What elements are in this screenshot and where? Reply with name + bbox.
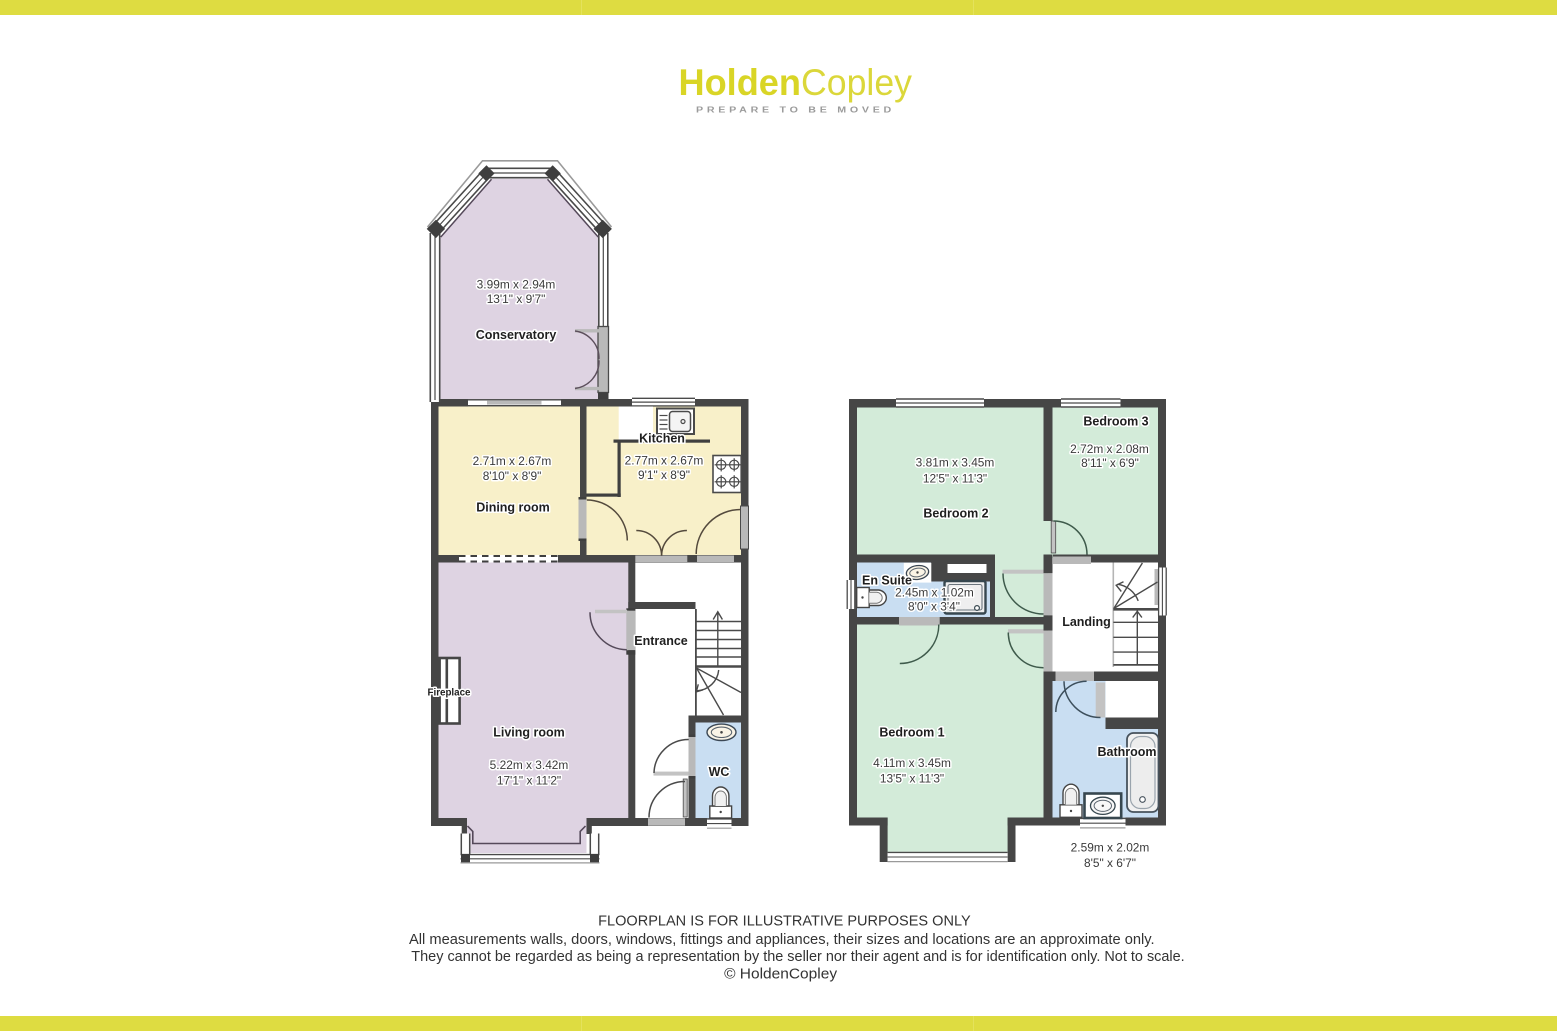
svg-text:8'5" x 6'7": 8'5" x 6'7" [1084,856,1136,870]
svg-text:FLOORPLAN IS FOR ILLUSTRATIVE: FLOORPLAN IS FOR ILLUSTRATIVE PURPOSES O… [598,914,971,930]
svg-text:13'5" x 11'3": 13'5" x 11'3" [880,772,944,786]
svg-text:8'0" x 3'4": 8'0" x 3'4" [908,600,960,614]
svg-text:2.45m x 1.02m: 2.45m x 1.02m [895,586,974,600]
svg-text:17'1" x 11'2": 17'1" x 11'2" [497,774,561,788]
svg-text:Kitchen: Kitchen [639,432,685,446]
svg-text:2.77m x 2.67m: 2.77m x 2.67m [625,454,704,468]
svg-text:Living room: Living room [493,726,565,740]
svg-text:Holden: Holden [679,61,802,103]
svg-text:Fireplace: Fireplace [427,688,471,699]
svg-text:Bathroom: Bathroom [1097,745,1156,759]
svg-text:En Suite: En Suite [862,574,912,588]
svg-text:Conservatory: Conservatory [476,328,557,342]
svg-text:All measurements walls, doors,: All measurements walls, doors, windows, … [409,932,1155,948]
svg-text:5.22m x 3.42m: 5.22m x 3.42m [490,758,569,772]
svg-text:They cannot be regarded as bei: They cannot be regarded as being a repre… [411,949,1184,965]
svg-text:2.59m x 2.02m: 2.59m x 2.02m [1071,841,1150,855]
svg-text:Bedroom 1: Bedroom 1 [879,726,944,740]
svg-text:Landing: Landing [1062,615,1111,629]
svg-text:3.81m x 3.45m: 3.81m x 3.45m [916,456,995,470]
svg-text:2.71m x 2.67m: 2.71m x 2.67m [473,454,552,468]
svg-text:Dining room: Dining room [476,501,550,515]
svg-text:WC: WC [709,765,730,779]
svg-text:© HoldenCopley: © HoldenCopley [724,967,838,983]
svg-text:4.11m x 3.45m: 4.11m x 3.45m [873,756,951,770]
svg-text:2.72m x 2.08m: 2.72m x 2.08m [1070,442,1149,456]
svg-text:8'11" x 6'9": 8'11" x 6'9" [1081,456,1139,470]
svg-text:Entrance: Entrance [634,634,688,648]
svg-text:3.99m x 2.94m: 3.99m x 2.94m [477,278,556,292]
svg-text:PREPARE TO BE MOVED: PREPARE TO BE MOVED [696,104,895,114]
svg-text:12'5" x 11'3": 12'5" x 11'3" [923,471,987,485]
svg-text:Bedroom 2: Bedroom 2 [923,507,988,521]
svg-text:Copley: Copley [801,61,912,103]
svg-text:Bedroom 3: Bedroom 3 [1083,415,1148,429]
svg-text:9'1" x 8'9": 9'1" x 8'9" [638,468,690,482]
svg-text:8'10" x 8'9": 8'10" x 8'9" [483,469,542,483]
svg-text:13'1" x 9'7": 13'1" x 9'7" [487,292,546,306]
